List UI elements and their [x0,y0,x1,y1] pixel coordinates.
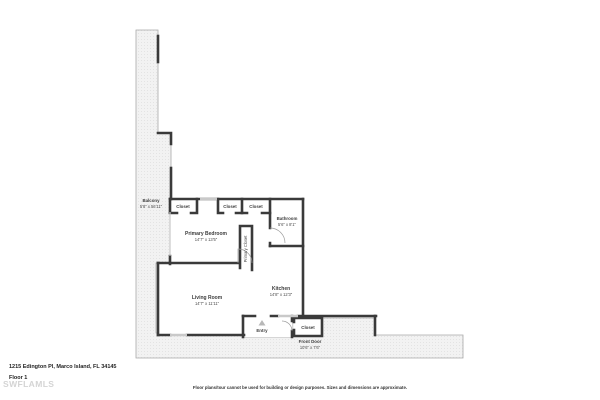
floor-label: Floor 1 [9,375,27,381]
front-door-dims: 10'6" x 7'6" [300,345,321,350]
balcony-dims: 5'8" x 56'11" [140,204,163,209]
entry-label: Entry [256,328,268,333]
closet3-label: Closet [249,204,263,209]
bathroom-dims: 5'6" x 8'1" [278,222,296,227]
property-address: 1215 Edington Pl, Marco Island, FL 34145 [9,364,117,370]
disclaimer-text: Floor plans/tour cannot be used for buil… [0,385,600,390]
floor-plan-canvas: Balcony 5'8" x 56'11" Closet Closet Clos… [0,0,600,400]
primary-bedroom-dims: 14'7" x 13'5" [195,237,218,242]
front-door-label: Front Door [299,339,322,344]
primary-closet-label: Primary Closet [243,235,248,263]
living-room-dims: 14'7" x 11'11" [195,301,220,306]
kitchen-dims: 14'8" x 12'3" [270,292,293,297]
closet1-label: Closet [176,204,190,209]
bathroom-label: Bathroom [277,216,298,221]
closet2-label: Closet [223,204,237,209]
entry-closet-label: Closet [301,325,315,330]
balcony-label: Balcony [142,198,160,203]
floor-plan-page: Balcony 5'8" x 56'11" Closet Closet Clos… [0,0,600,400]
